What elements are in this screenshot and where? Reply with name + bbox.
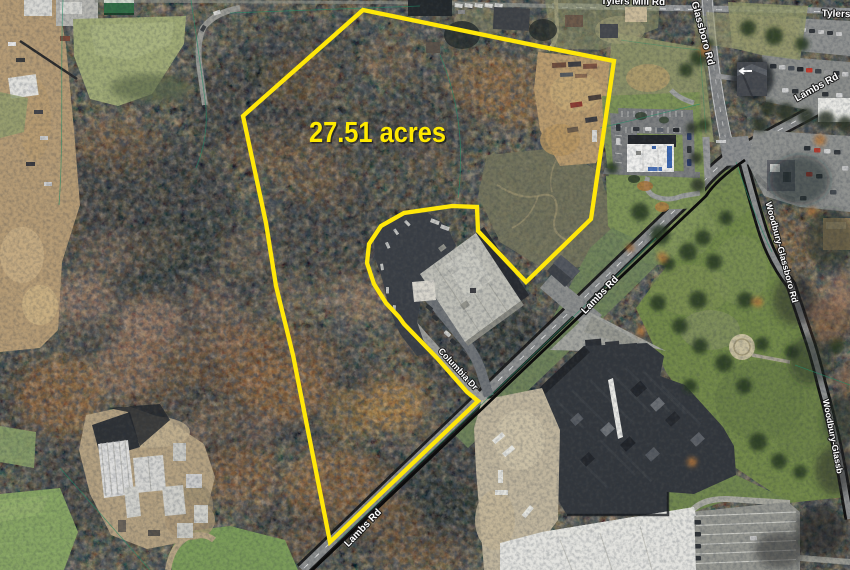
svg-text:27.51 acres: 27.51 acres <box>309 117 446 149</box>
svg-text:Tylers Rd: Tylers Rd <box>821 8 850 21</box>
svg-text:Tylers Mill Rd: Tylers Mill Rd <box>601 0 665 8</box>
